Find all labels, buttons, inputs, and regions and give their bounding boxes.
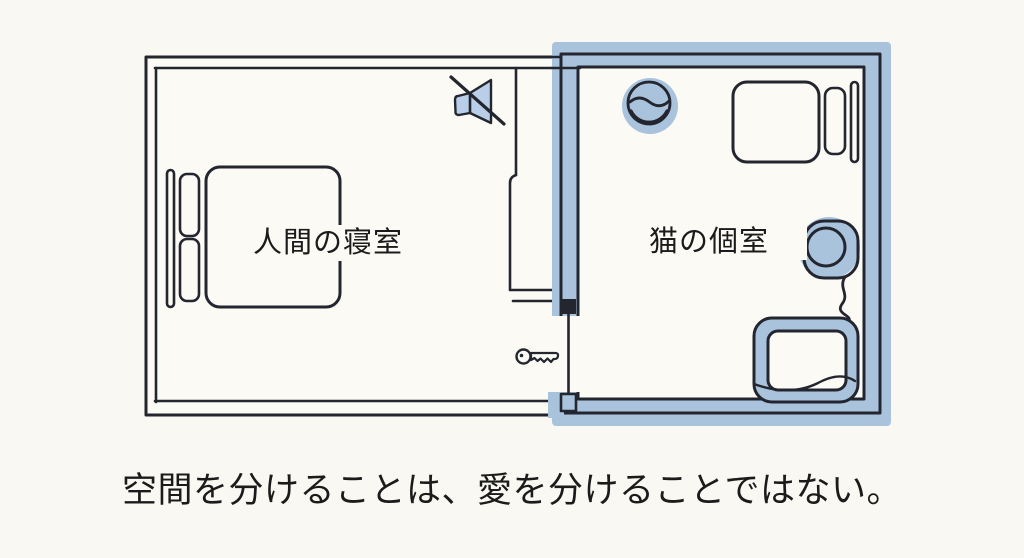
caption-text: 空間を分けることは、愛を分けることではない。 bbox=[8, 462, 1016, 513]
cat-room-label: 猫の個室 bbox=[611, 224, 807, 260]
litter-box-icon bbox=[754, 318, 858, 402]
door-post-bottom bbox=[561, 394, 576, 411]
door-post-top bbox=[562, 299, 576, 314]
water-bowl-icon bbox=[622, 78, 678, 134]
human-bedroom-label: 人間の寝室 bbox=[229, 225, 427, 261]
illustration-canvas: 人間の寝室 猫の個室 空間を分けることは、愛を分けることではない。 bbox=[0, 0, 1024, 558]
